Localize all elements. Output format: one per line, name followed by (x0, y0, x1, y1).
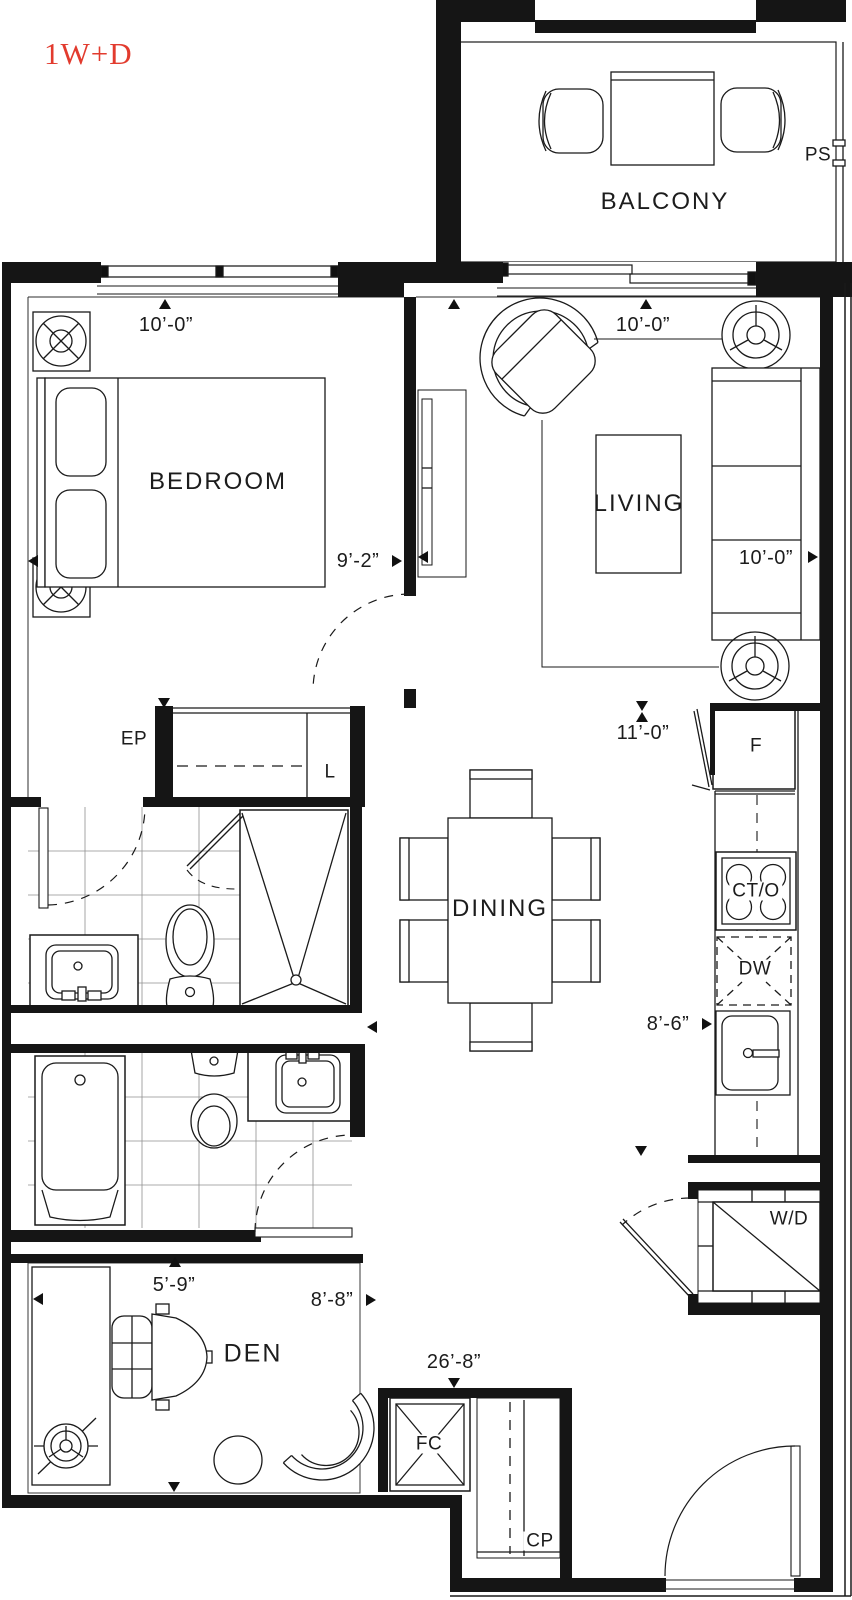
room-label-den: DEN (224, 1342, 283, 1367)
side-table (214, 1436, 262, 1484)
dim-bedroom-depth: 10’-0” (139, 315, 193, 335)
wd-closet-door (620, 1198, 693, 1297)
entry-door (665, 1446, 800, 1576)
bath2-door (255, 1228, 352, 1237)
bath1-door (39, 808, 48, 908)
toilet (191, 1050, 238, 1148)
toilet (166, 905, 214, 1009)
plan-title: 1W+D (44, 36, 133, 72)
pillow (56, 490, 106, 578)
room-label-dining: DINING (452, 897, 548, 921)
bedroom-window (97, 262, 343, 294)
dim-overall-depth: 26’-8” (427, 1352, 481, 1372)
ceiling-light-icon (33, 312, 90, 371)
ceiling-fan-icon (721, 632, 789, 700)
linen-closet (173, 708, 350, 797)
ceiling-fan-icon (722, 301, 790, 369)
room-label-balcony: BALCONY (601, 190, 730, 214)
bath1-shower (187, 810, 348, 1007)
label-linen: L (324, 763, 335, 782)
dim-den-depth: 5’-9” (153, 1275, 196, 1295)
bathtub (35, 1056, 125, 1225)
label-cooktop-oven: CT/O (729, 882, 782, 901)
bath1-door-swing (48, 808, 145, 905)
balcony-sliding-door (497, 262, 757, 296)
label-privacy-screen: PS (805, 146, 831, 165)
dim-den-width: 8’-8” (311, 1290, 354, 1310)
bath2-door-swing (255, 1135, 352, 1232)
dim-living-width: 10’-0” (736, 548, 796, 568)
label-coat-closet: CP (523, 1532, 556, 1551)
label-fridge: F (750, 737, 762, 756)
bath2-vanity (248, 1047, 352, 1121)
kitchen (692, 708, 798, 1155)
balcony-chair-left (539, 89, 603, 153)
washer-dryer-closet (698, 1190, 820, 1303)
balcony-chair-right (721, 88, 785, 152)
dim-hall-depth: 11’-0” (617, 723, 670, 743)
label-dishwasher: DW (736, 960, 775, 979)
fridge (692, 708, 795, 794)
bath1-vanity (30, 935, 138, 1007)
label-washer-dryer: W/D (767, 1210, 811, 1229)
dim-kitchen-width: 8’-6” (647, 1014, 690, 1034)
bedroom-door-swing (313, 594, 410, 691)
shower-door (187, 813, 240, 866)
balcony-area (458, 42, 845, 262)
kitchen-sink (716, 1011, 790, 1095)
dim-bedroom-width: 9’-2” (334, 551, 383, 571)
label-electrical-panel: EP (121, 730, 147, 749)
floorplan-1wd: 1W+D BALCONY PS BEDROOM LIVING DINING DE… (0, 0, 852, 1600)
desk-chair (112, 1304, 212, 1410)
room-label-living: LIVING (594, 492, 685, 516)
sofa (712, 368, 820, 640)
tv-console (418, 390, 466, 577)
balcony-table (611, 72, 714, 165)
room-label-bedroom: BEDROOM (149, 470, 287, 494)
dim-living-depth: 10’-0” (616, 315, 670, 335)
label-fan-coil: FC (413, 1435, 445, 1454)
pillow (56, 388, 106, 476)
entry-threshold (662, 1580, 798, 1589)
